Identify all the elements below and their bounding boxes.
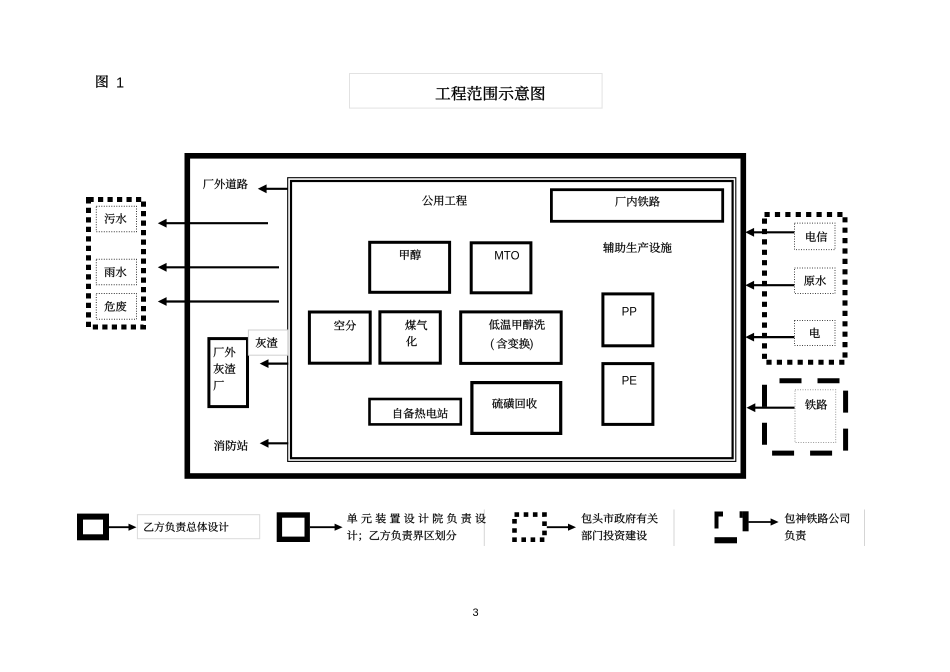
svg-text:MTO: MTO [494, 251, 519, 263]
svg-text:PP: PP [622, 306, 638, 318]
svg-text:PE: PE [622, 376, 638, 388]
svg-text:1: 1 [116, 75, 124, 91]
svg-text:3: 3 [473, 607, 479, 619]
